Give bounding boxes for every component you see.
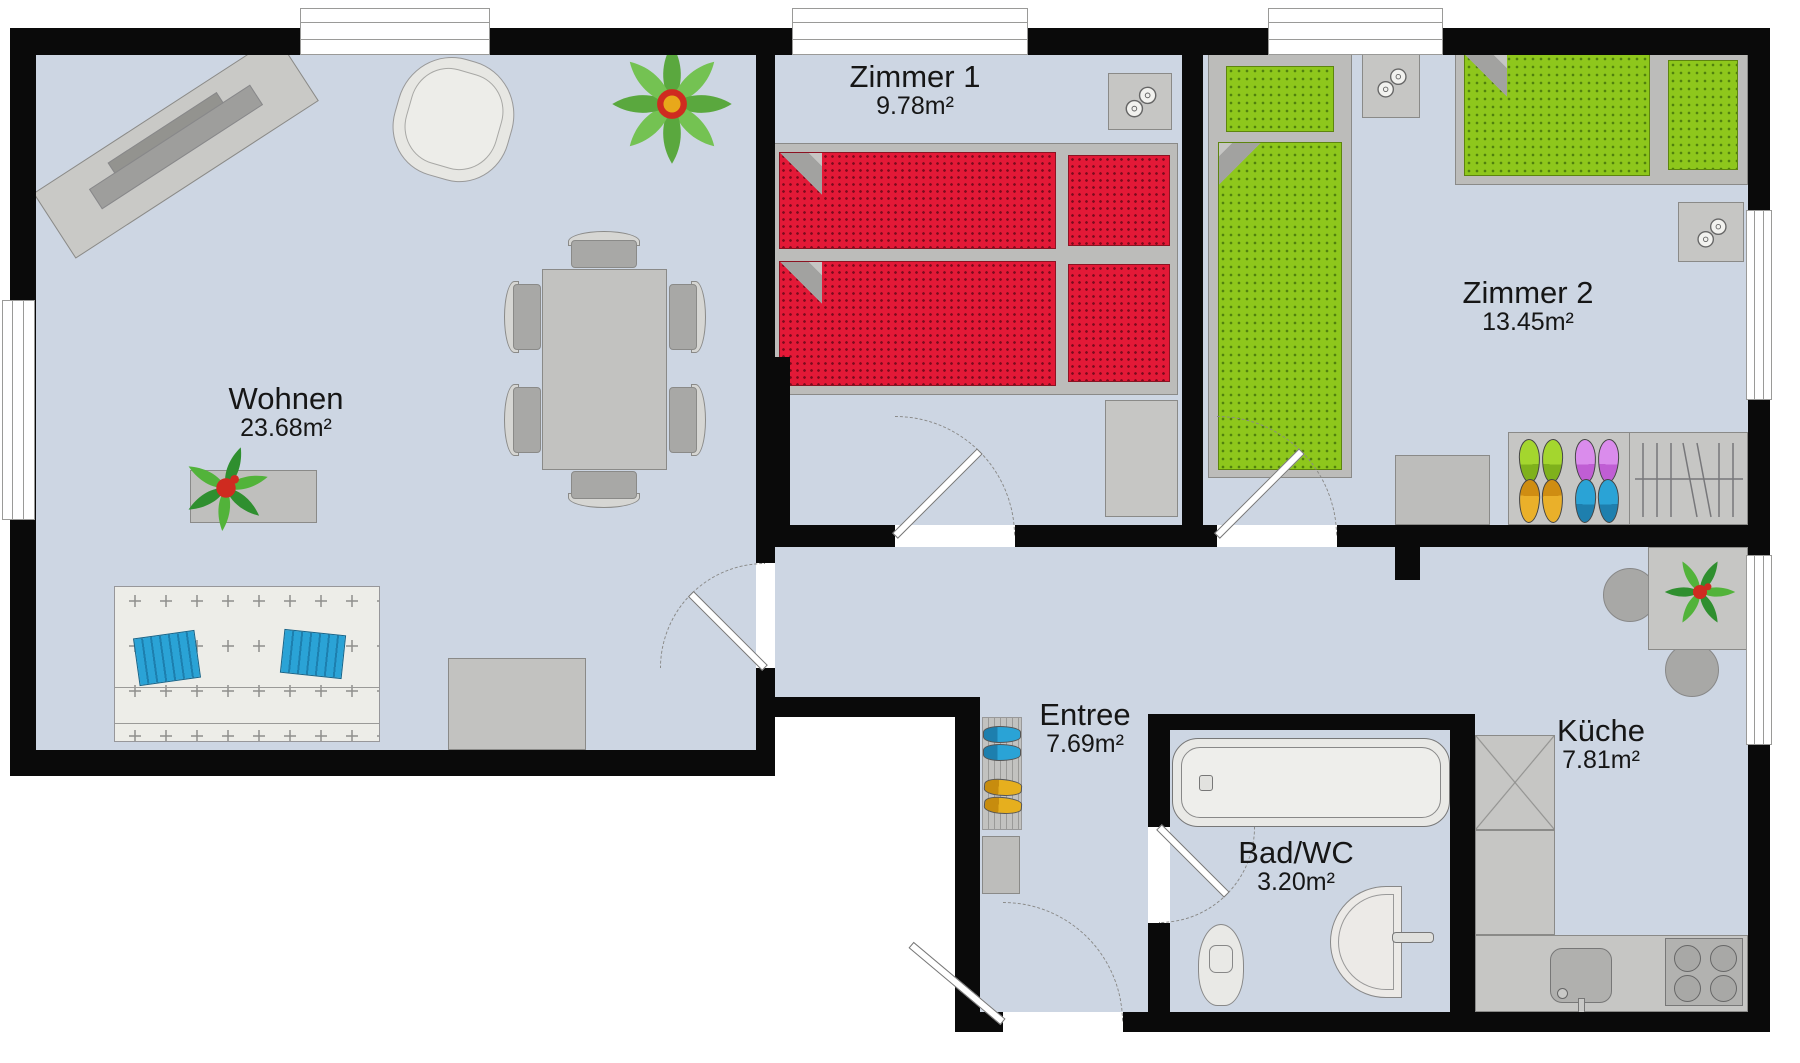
hangers-icon <box>1631 433 1747 524</box>
wall-hall-north <box>756 525 895 547</box>
burner <box>1674 945 1701 972</box>
chair-seat <box>669 284 697 350</box>
burner <box>1674 975 1701 1002</box>
pillow <box>1068 264 1170 382</box>
room-name: Bad/WC <box>1238 836 1353 869</box>
kitchen-counter-column <box>1475 830 1555 935</box>
bathtub <box>1172 738 1450 827</box>
room-label-zimmer2: Zimmer 2 13.45m² <box>1463 276 1594 337</box>
dining-table <box>542 269 667 470</box>
shoe <box>983 744 1021 761</box>
room-name: Entree <box>1039 698 1130 731</box>
potted-plant-icon <box>172 434 280 542</box>
blanket-fold <box>780 153 822 195</box>
sofa-seat-line <box>115 687 379 688</box>
lamp-icon <box>1374 65 1410 101</box>
chair-seat <box>513 284 541 350</box>
pillow <box>1068 155 1170 246</box>
sofa-cushion <box>133 630 201 686</box>
shoe <box>983 726 1021 743</box>
dining-chair <box>668 281 706 353</box>
room-name: Wohnen <box>229 382 344 415</box>
dining-chair <box>568 231 640 269</box>
window-icon <box>1746 555 1772 745</box>
shoe <box>1541 479 1564 524</box>
mattress <box>779 261 1056 386</box>
room-name: Küche <box>1557 714 1645 747</box>
wardrobe-divider <box>1629 433 1630 524</box>
nightstand <box>1108 73 1172 130</box>
tuft-marks <box>412 75 499 162</box>
tall-cabinet <box>1475 735 1555 830</box>
shoe <box>1574 479 1597 524</box>
room-area: 23.68m² <box>229 415 344 443</box>
dining-chair <box>568 470 640 508</box>
blanket-fold <box>1465 55 1507 97</box>
wall-kitchen-stub <box>1395 547 1420 580</box>
window-icon <box>1268 8 1443 55</box>
entree-cabinet <box>982 836 1020 894</box>
room-label-entree: Entree 7.69m² <box>1039 698 1130 759</box>
dining-chair <box>668 384 706 456</box>
room-area: 7.81m² <box>1557 747 1645 775</box>
wall-step <box>775 357 790 547</box>
wardrobe-shoes-rail <box>1508 432 1748 525</box>
mattress <box>779 152 1056 249</box>
wall-bad-west <box>1148 714 1170 827</box>
sofa-seat-line <box>115 723 379 724</box>
pillow <box>1226 66 1334 132</box>
window-icon <box>792 8 1028 55</box>
window-icon <box>1746 210 1772 400</box>
blanket-fold <box>780 262 822 304</box>
shoe <box>1518 479 1541 524</box>
shoe <box>1574 439 1597 484</box>
shoe <box>1541 439 1564 484</box>
room-area: 9.78m² <box>850 93 981 121</box>
chair-seat <box>513 387 541 453</box>
nightstand <box>1678 202 1744 262</box>
dresser <box>1395 455 1490 525</box>
blanket-fold <box>1219 143 1261 185</box>
mattress <box>1464 54 1650 176</box>
window-icon <box>300 8 490 55</box>
shoe <box>1518 439 1541 484</box>
dining-chair <box>504 281 542 353</box>
room-label-bad: Bad/WC 3.20m² <box>1238 836 1353 897</box>
wall-wohnen-east <box>756 28 775 563</box>
chair-seat <box>669 387 697 453</box>
floor-hallway <box>775 547 1748 697</box>
room-label-wohnen: Wohnen 23.68m² <box>229 382 344 443</box>
burner <box>1710 975 1737 1002</box>
coffee-table <box>448 658 586 750</box>
chair-seat <box>571 471 637 499</box>
tub-drain <box>1199 775 1213 791</box>
room-name: Zimmer 2 <box>1463 276 1594 309</box>
floor-plan: Wohnen 23.68m² Zimmer 1 9.78m² Zimmer 2 … <box>0 0 1800 1063</box>
stove <box>1665 938 1743 1006</box>
sofa-cushion <box>280 629 346 679</box>
lamp-icon <box>1122 83 1160 121</box>
burner <box>1710 945 1737 972</box>
room-name: Zimmer 1 <box>850 60 981 93</box>
shoe <box>1597 479 1620 524</box>
wall-hall-south <box>775 697 980 717</box>
sink-faucet <box>1392 932 1434 943</box>
wall-hall-north <box>1337 525 1768 547</box>
window-icon <box>2 300 35 520</box>
wall-bad-east <box>1450 714 1475 1032</box>
room-area: 13.45m² <box>1463 309 1594 337</box>
wall-exterior-right <box>1748 28 1770 1032</box>
shoe <box>1597 439 1620 484</box>
wall-hall-north <box>1015 525 1217 547</box>
wall-wohnen-east <box>756 668 775 776</box>
room-label-kueche: Küche 7.81m² <box>1557 714 1645 775</box>
dining-chair <box>504 384 542 456</box>
pillow <box>1668 60 1738 170</box>
palm-plant-icon <box>608 40 736 168</box>
kitchen-chair <box>1665 643 1719 697</box>
wall-zimmer1-zimmer2 <box>1182 28 1203 525</box>
toilet <box>1198 924 1244 1006</box>
chair-seat <box>571 240 637 268</box>
room-label-zimmer1: Zimmer 1 9.78m² <box>850 60 981 121</box>
room-area: 3.20m² <box>1238 869 1353 897</box>
wardrobe <box>1105 400 1178 517</box>
potted-plant-icon <box>1656 548 1744 636</box>
wall-wohnen-bottom <box>10 750 775 776</box>
room-area: 7.69m² <box>1039 731 1130 759</box>
wall-bad-north <box>1148 714 1475 730</box>
sink-drain <box>1557 988 1568 999</box>
lamp-icon <box>1694 215 1730 251</box>
nightstand <box>1362 48 1420 118</box>
